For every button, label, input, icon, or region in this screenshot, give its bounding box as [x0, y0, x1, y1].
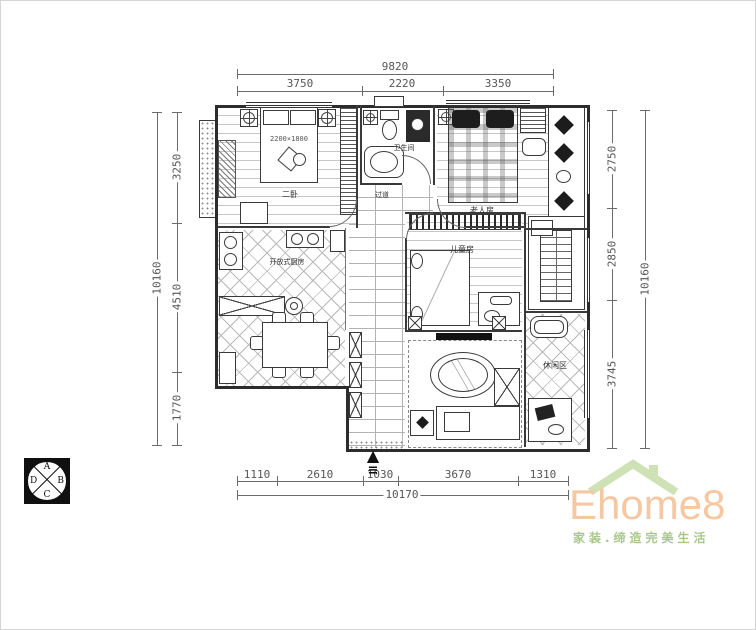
- dim-bottom-seg: 3670: [443, 468, 474, 481]
- tv-cabinet: [240, 202, 268, 224]
- wall-dining-south: [215, 386, 349, 389]
- wall-bedroom2-east: [356, 105, 358, 228]
- pillow-dark: [452, 110, 480, 128]
- ceiling-lamp-icon: [240, 109, 258, 127]
- entrance-arrow-icon: ▲: [362, 448, 384, 464]
- floor-plan-canvas: 9820 3750 2220 3350 10160 3250 4510 1770…: [0, 0, 756, 630]
- dining-table: [262, 322, 328, 368]
- hall-cabinet-x: [349, 392, 362, 418]
- dim-top-seg: 3350: [483, 77, 514, 90]
- column-x: [492, 316, 506, 330]
- column-x: [408, 316, 422, 330]
- dim-left-seg: 3250: [171, 152, 184, 183]
- shelf-deco-round: [556, 170, 571, 183]
- window: [584, 238, 590, 302]
- entrance-threshold-icon: ≡: [362, 463, 384, 478]
- wall-bedroom2-south: [217, 226, 330, 228]
- dining-chair: [326, 336, 340, 350]
- dim-tick: [237, 86, 238, 96]
- compass-letter-right: B: [57, 476, 64, 486]
- dim-top-total: 9820: [380, 60, 411, 73]
- compass-letter-left: D: [30, 476, 37, 486]
- room-label-bathroom: 卫生间: [394, 143, 415, 153]
- dim-tick: [237, 490, 238, 500]
- wall-elder-south: [465, 226, 524, 228]
- wall-elder-south-right: [524, 228, 587, 230]
- bed-size-label: 2200×1800: [270, 135, 308, 143]
- dim-tick: [553, 86, 554, 96]
- brand-name: Ehome8: [569, 481, 725, 529]
- room-label-kids: 儿童房: [450, 244, 474, 255]
- corridor-floor: [349, 185, 433, 212]
- wall-bathroom-south: [360, 183, 402, 185]
- tv: [436, 333, 492, 340]
- wine-cabinet: [219, 352, 236, 384]
- washer-drum: [290, 302, 298, 310]
- burner-icon: [291, 233, 303, 245]
- dim-left-seg: 1770: [171, 393, 184, 424]
- sofa-pillow: [444, 412, 470, 432]
- desk-item: [490, 296, 512, 305]
- room-label-leisure: 休闲区: [543, 360, 567, 371]
- ceiling-lamp-icon: [318, 109, 336, 127]
- dim-tick: [607, 448, 617, 449]
- dim-right-seg: 2850: [606, 239, 619, 270]
- sink-basin: [224, 236, 237, 249]
- wall-leisure-north: [526, 311, 587, 313]
- door-arc-bathroom: [402, 155, 431, 184]
- washbasin: [411, 118, 424, 131]
- dim-top-seg: 2220: [387, 77, 418, 90]
- dim-tick: [640, 110, 650, 111]
- room-label-kitchen: 开放式厨房: [270, 257, 305, 267]
- balcony-door: [218, 140, 236, 198]
- plant-fern-icon: [540, 230, 572, 302]
- bed-throw-circle: [293, 153, 306, 166]
- dim-left-total: 10160: [151, 259, 164, 296]
- dim-tick: [607, 300, 617, 301]
- compass-letter-top: A: [24, 462, 70, 472]
- wall-bathroom-east: [433, 105, 435, 185]
- window: [246, 102, 332, 108]
- dim-tick: [152, 445, 162, 446]
- sink-basin: [224, 253, 237, 266]
- leisure-bench-inner: [534, 320, 564, 334]
- dim-right-total: 10160: [639, 260, 652, 297]
- shaft: [374, 96, 404, 107]
- window: [584, 330, 590, 418]
- leisure-chair: [548, 424, 564, 435]
- compass-letter-bottom: C: [24, 490, 70, 500]
- dim-tick: [443, 86, 444, 96]
- dim-tick: [518, 476, 519, 486]
- hall-cabinet-x: [349, 332, 362, 358]
- dim-tick: [553, 69, 554, 79]
- dim-bottom-seg: 2610: [305, 468, 336, 481]
- toilet-bowl: [382, 120, 397, 140]
- room-label-bedroom2: 二卧: [282, 189, 298, 200]
- dim-tick: [607, 208, 617, 209]
- pillow-dark: [486, 110, 514, 128]
- dim-tick: [607, 110, 617, 111]
- dim-tick: [172, 445, 182, 446]
- dim-tick: [398, 476, 399, 486]
- brand-tagline: 家装.缔造完美生活: [573, 529, 710, 546]
- hall-cabinet-x: [349, 362, 362, 388]
- wall-kitchen-east: [345, 228, 346, 330]
- dim-right-seg: 2750: [606, 144, 619, 175]
- ceiling-lamp-icon: [363, 110, 378, 125]
- dim-bottom-seg: 1110: [242, 468, 273, 481]
- logo: Ehome8 家装.缔造完美生活: [565, 455, 753, 550]
- dim-tick: [237, 69, 238, 79]
- dim-tick: [277, 476, 278, 486]
- canopy-curtain: [411, 253, 423, 269]
- dim-line: [237, 91, 553, 92]
- rug-oval-inner: [438, 358, 488, 392]
- dim-left-seg: 4510: [171, 282, 184, 313]
- dim-tick: [172, 372, 182, 373]
- room-label-hallway: 过道: [375, 190, 389, 200]
- sofa-corner: [494, 368, 520, 406]
- dim-tick: [640, 448, 650, 449]
- dim-right-seg: 3745: [606, 359, 619, 390]
- dim-line: [237, 74, 553, 75]
- window: [584, 122, 590, 194]
- dim-bottom-seg: 1310: [528, 468, 559, 481]
- wall-entry-west: [346, 386, 349, 452]
- fridge: [330, 230, 345, 252]
- wall-right-column-west: [524, 212, 526, 447]
- pillow: [263, 110, 289, 125]
- wall-bathroom-west: [360, 105, 362, 185]
- pillow: [290, 110, 316, 125]
- dim-top-seg: 3750: [285, 77, 316, 90]
- wall-kids-south: [407, 330, 522, 332]
- compass: A B C D: [24, 458, 70, 504]
- toilet-tank: [380, 110, 399, 120]
- window: [446, 100, 530, 106]
- bench: [522, 138, 546, 156]
- bathtub-inner: [370, 151, 398, 173]
- dim-tick: [362, 86, 363, 96]
- wall-outer-left: [215, 105, 218, 389]
- dim-tick: [237, 476, 238, 486]
- dim-tick: [152, 112, 162, 113]
- dim-tick: [172, 112, 182, 113]
- dim-tick: [172, 223, 182, 224]
- dim-bottom-total: 10170: [383, 488, 420, 501]
- wardrobe: [520, 107, 546, 133]
- burner-icon: [307, 233, 319, 245]
- wall-kids-west: [405, 238, 407, 332]
